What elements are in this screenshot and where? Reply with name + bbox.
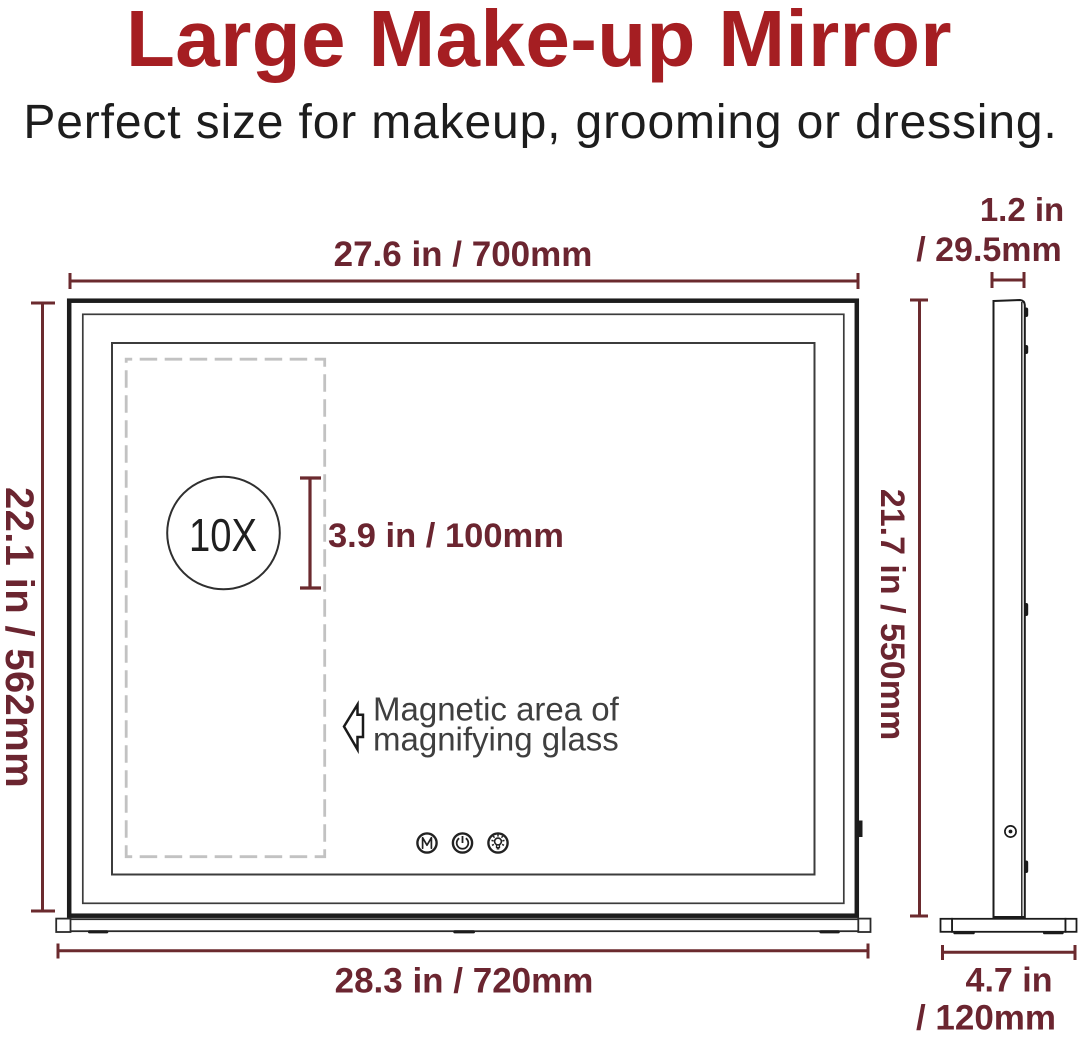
svg-text:22.1 in / 562mm: 22.1 in / 562mm xyxy=(0,487,41,788)
svg-text:Perfect size for makeup, groom: Perfect size for makeup, grooming or dre… xyxy=(23,96,1057,149)
svg-text:10X: 10X xyxy=(189,510,257,561)
svg-text:magnifying glass: magnifying glass xyxy=(373,721,619,758)
svg-text:/ 29.5mm: / 29.5mm xyxy=(916,231,1062,269)
svg-text:Large Make-up Mirror: Large Make-up Mirror xyxy=(126,0,952,83)
svg-text:3.9 in / 100mm: 3.9 in / 100mm xyxy=(328,517,564,555)
svg-text:21.7 in / 550mm: 21.7 in / 550mm xyxy=(873,489,911,740)
svg-text:28.3 in / 720mm: 28.3 in / 720mm xyxy=(335,962,594,1001)
svg-text:27.6 in / 700mm: 27.6 in / 700mm xyxy=(334,235,593,274)
svg-text:1.2 in: 1.2 in xyxy=(980,191,1064,228)
svg-text:/ 120mm: / 120mm xyxy=(916,999,1056,1038)
svg-text:4.7 in: 4.7 in xyxy=(966,962,1053,1000)
